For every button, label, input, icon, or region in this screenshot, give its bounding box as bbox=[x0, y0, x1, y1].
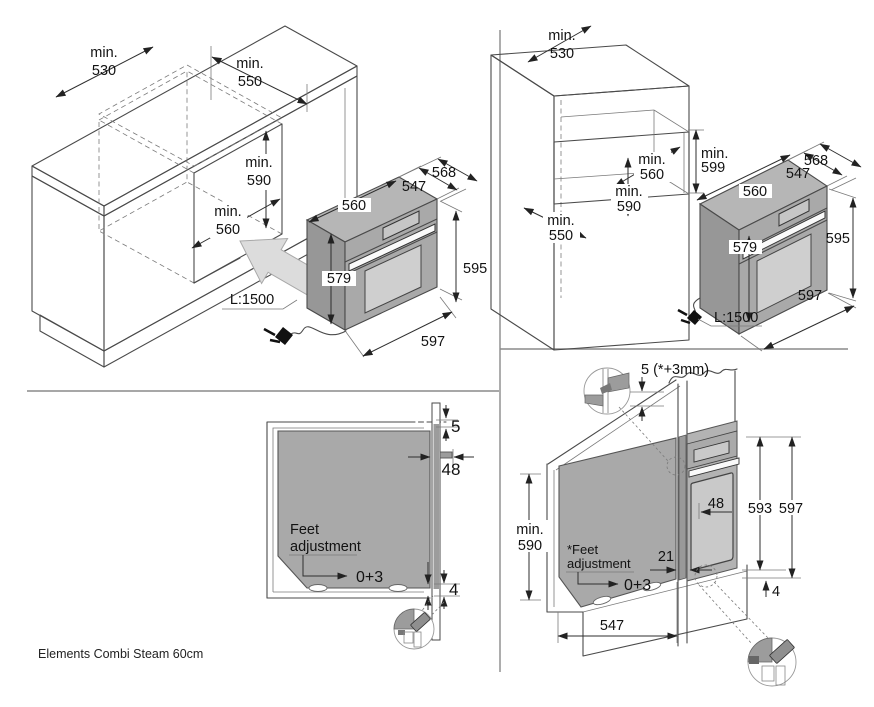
dim-bottom-gap: 4 bbox=[449, 580, 458, 599]
cord-length-label: L:1500 bbox=[230, 292, 274, 308]
dim-min590-line2: 590 bbox=[617, 199, 641, 215]
dim-oven-560: 560 bbox=[342, 198, 366, 214]
dim-niche-depth: 547 bbox=[600, 618, 624, 634]
power-cord bbox=[678, 298, 702, 325]
dim-bottom-gap: 4 bbox=[772, 584, 780, 600]
oven-section-profile bbox=[278, 431, 430, 588]
door-section bbox=[434, 424, 440, 589]
dim-min560-line2: 560 bbox=[216, 222, 240, 238]
dim-min590-line2: 590 bbox=[518, 538, 542, 554]
cord-length-label: L:1500 bbox=[714, 310, 758, 326]
dim-height-outer: 597 bbox=[779, 501, 803, 517]
power-cord bbox=[264, 327, 346, 345]
feet-adjustment-label-1: Feet bbox=[290, 522, 319, 538]
dim-door-depth: 48 bbox=[442, 460, 461, 479]
dim-oven-595: 595 bbox=[463, 261, 487, 277]
dim-oven-568: 568 bbox=[804, 153, 828, 169]
dim-oven-597: 597 bbox=[421, 334, 445, 350]
dim-min550-line2: 550 bbox=[549, 228, 573, 244]
dim-min590-line1: min. bbox=[245, 155, 272, 171]
dim-min530-line1: min. bbox=[90, 45, 117, 61]
oven-foot bbox=[389, 585, 407, 592]
oven-foot bbox=[309, 585, 327, 592]
dim-oven-595: 595 bbox=[826, 231, 850, 247]
dim-min560-line1: min. bbox=[214, 204, 241, 220]
oven-isometric bbox=[307, 177, 437, 330]
dim-min550-line2: 550 bbox=[238, 74, 262, 90]
dim-min560-line1: min. bbox=[638, 152, 665, 168]
dim-oven-560: 560 bbox=[743, 184, 767, 200]
feet-adjustment-label-2: adjustment bbox=[567, 556, 631, 571]
dim-top-gap: 5 (*+3mm) bbox=[641, 362, 709, 378]
door-section bbox=[679, 435, 686, 580]
dim-min530-line1: min. bbox=[548, 28, 575, 44]
oven-section-profile bbox=[559, 438, 676, 607]
dim-door-depth: 48 bbox=[708, 496, 724, 512]
handle-section bbox=[440, 452, 452, 458]
dim-min590-line2: 590 bbox=[247, 173, 271, 189]
side-section-view: 5 48 Feet adjustment 0+3 4 bbox=[267, 403, 474, 649]
feet-adjustment-label-2: adjustment bbox=[290, 539, 361, 555]
dim-oven-547: 547 bbox=[402, 179, 426, 195]
footer-model-label: Elements Combi Steam 60cm bbox=[38, 647, 203, 661]
door-glass bbox=[691, 473, 733, 570]
column-section-view: 5 (*+3mm) min. 590 *Feet adjustment 0+3 … bbox=[511, 362, 806, 686]
under-counter-view: min. 530 min. 550 min. 590 min. 560 560 bbox=[32, 26, 487, 367]
dim-min550-line1: min. bbox=[236, 56, 263, 72]
foot-detail-circle bbox=[695, 565, 796, 686]
dim-top-gap: 5 bbox=[451, 417, 460, 436]
dim-min599-line2: 599 bbox=[701, 160, 725, 176]
dim-min530-line2: 530 bbox=[550, 46, 574, 62]
dim-height-inner: 593 bbox=[748, 501, 772, 517]
installation-diagram-page: min. 530 min. 550 min. 590 min. 560 560 bbox=[0, 0, 874, 707]
tall-cabinet-view: min. 530 min. 599 min. 560 min. 590 min.… bbox=[491, 26, 861, 351]
feet-adjustment-range: 0+3 bbox=[624, 577, 651, 594]
dim-min530-line2: 530 bbox=[92, 63, 116, 79]
dim-oven-579: 579 bbox=[733, 240, 757, 256]
feet-adjustment-label-1: *Feet bbox=[567, 542, 598, 557]
dim-oven-568: 568 bbox=[432, 165, 456, 181]
dim-wall-offset: 21 bbox=[658, 549, 674, 565]
feet-adjustment-range: 0+3 bbox=[356, 569, 383, 586]
dim-oven-597: 597 bbox=[798, 288, 822, 304]
dim-min590-line1: min. bbox=[615, 184, 642, 200]
dim-min590-line1: min. bbox=[516, 522, 543, 538]
dim-min560-line2: 560 bbox=[640, 167, 664, 183]
dim-oven-579: 579 bbox=[327, 271, 351, 287]
dim-min550-line1: min. bbox=[547, 213, 574, 229]
installation-diagram: min. 530 min. 550 min. 590 min. 560 560 bbox=[0, 0, 874, 707]
